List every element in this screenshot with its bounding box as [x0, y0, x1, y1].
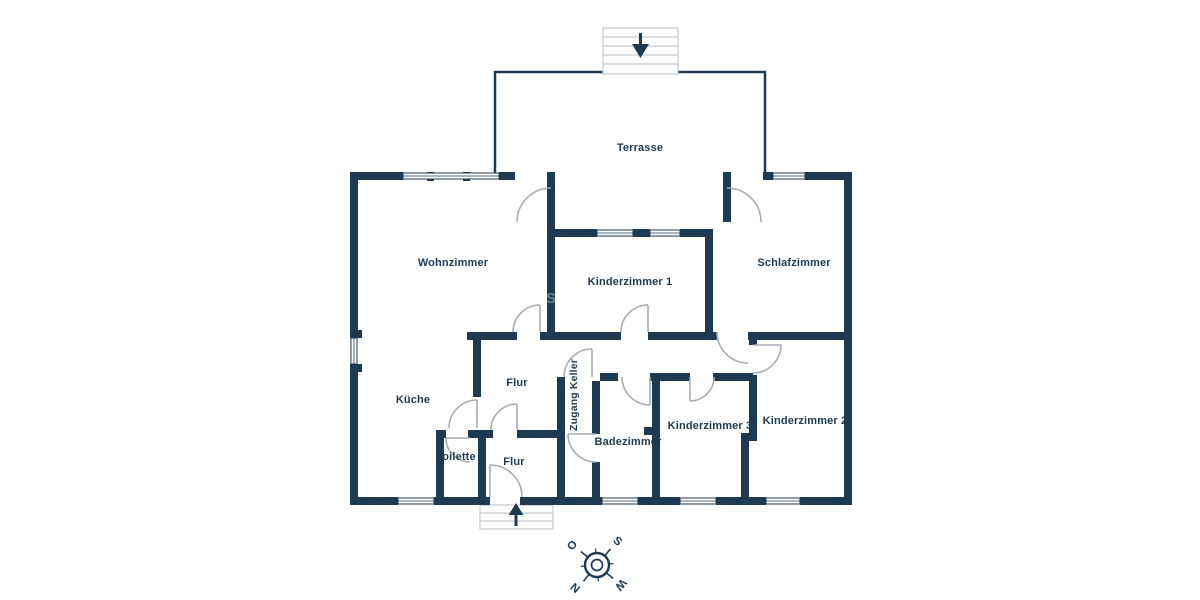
room-label-kueche: Küche [396, 394, 430, 406]
door-terrace-left [517, 188, 551, 222]
door-bathroom [622, 377, 650, 405]
compass-rose-icon: S O W N [565, 535, 628, 595]
room-label-badezimmer: Badezimmer [595, 436, 662, 448]
room-label-kinderzimmer3: Kinderzimmer 3 [668, 420, 753, 432]
door-terrace-right [727, 188, 761, 222]
stairs-terrace [603, 28, 678, 74]
door-child1 [621, 305, 648, 332]
floorplan: Terrasse Wohnzimmer Kinderzimmer 1 Schla… [0, 0, 1200, 600]
window-top-bedroom [773, 173, 805, 179]
compass-letter-n: N [569, 580, 583, 595]
door-child3 [690, 377, 714, 401]
door-entrance [490, 465, 522, 497]
compass-letter-s: S [611, 535, 625, 549]
window-bottom-child3 [680, 498, 716, 504]
room-label-flur-unten: Flur [503, 456, 525, 468]
room-labels: Terrasse Wohnzimmer Kinderzimmer 1 Schla… [396, 142, 848, 468]
terrace-outline [495, 72, 765, 176]
room-label-terrasse: Terrasse [617, 142, 663, 154]
room-label-kinderzimmer2: Kinderzimmer 2 [763, 415, 848, 427]
window-top-living [403, 173, 499, 179]
room-label-schlafzimmer: Schlafzimmer [757, 257, 831, 269]
compass-letter-o: O [565, 538, 580, 553]
window-bottom-bath [602, 498, 638, 504]
door-livingroom [513, 305, 540, 332]
window-bottom-child2 [766, 498, 800, 504]
door-child2 [753, 345, 781, 373]
window-left-kitchen [351, 338, 357, 364]
room-label-wohnzimmer: Wohnzimmer [418, 257, 489, 269]
room-label-zugang-keller: Zugang Keller [568, 359, 580, 431]
door-corridor-bath [568, 434, 596, 462]
stairs-entrance [480, 503, 553, 529]
compass-letter-w: W [612, 576, 628, 592]
door-bedroom [717, 332, 748, 363]
room-label-toilette: Toilette [436, 451, 476, 463]
window-child1-a [597, 230, 633, 236]
walls [350, 172, 852, 505]
room-label-flur-oben: Flur [506, 377, 528, 389]
door-hall [491, 404, 517, 430]
window-child1-b [650, 230, 680, 236]
floorplan-svg: Terrasse Wohnzimmer Kinderzimmer 1 Schla… [0, 0, 1200, 600]
watermark: S [546, 290, 556, 307]
room-label-kinderzimmer1: Kinderzimmer 1 [588, 276, 673, 288]
door-kitchen [449, 400, 477, 428]
window-bottom-kitchen [398, 498, 434, 504]
